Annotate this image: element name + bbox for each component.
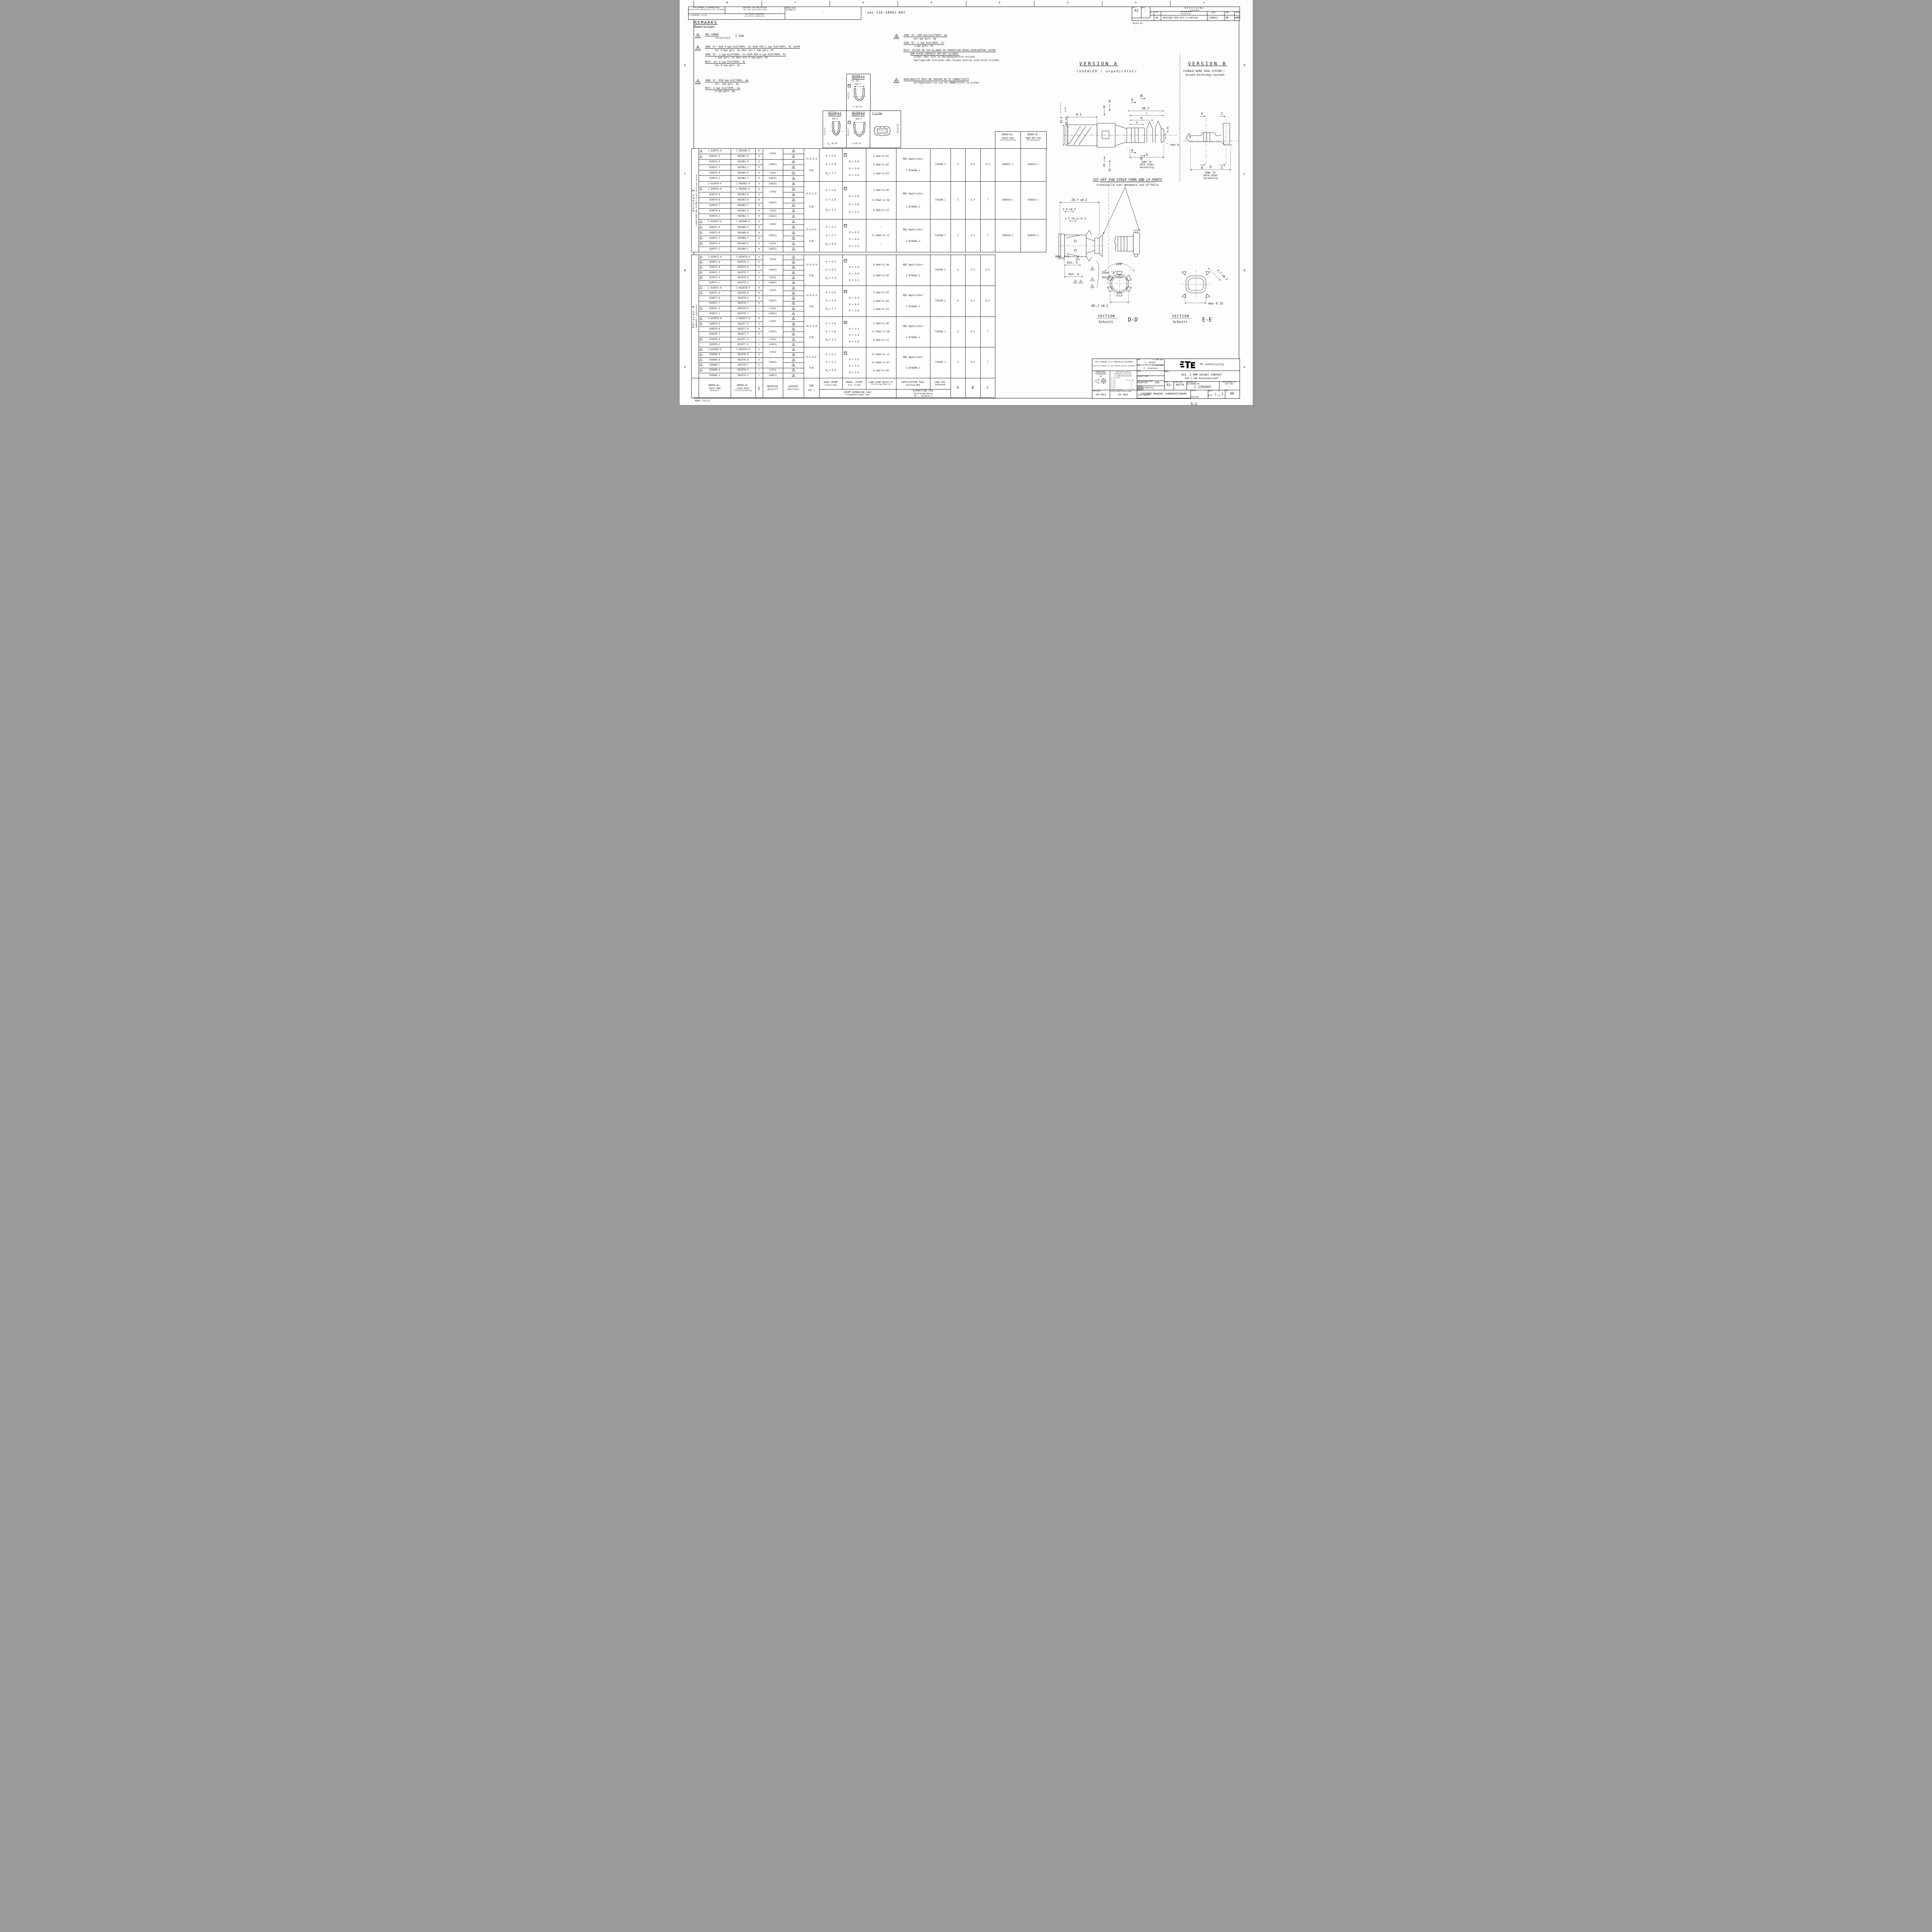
table-cell: M xyxy=(755,296,763,301)
table-cell: N xyxy=(755,236,763,241)
svg-text:CUT-OFF FOR STRIP FORM AND LP-: CUT-OFF FOR STRIP FORM AND LP-PARTS xyxy=(1093,178,1162,182)
grid-col-label: 6 xyxy=(862,1,864,4)
loc-value: A1 xyxy=(1132,9,1141,13)
table-cell: >1.0-2.5FLR xyxy=(804,286,819,316)
table-cell: M xyxy=(755,176,763,181)
note-triangle-icon: 5 xyxy=(894,78,899,83)
project-label: PROJECT NR.: xyxy=(1133,22,1144,24)
drawing-sheet: 87654321 DDCCBBAA THIS DRAWING IS UNPUBL… xyxy=(680,0,1253,405)
table-cell: CuFe2 xyxy=(763,276,783,281)
table-cell: CuNiSi xyxy=(763,214,783,219)
table-cell: K xyxy=(755,265,763,270)
svg-text:2: 2 xyxy=(793,199,794,201)
brand-name: TE Connectivity xyxy=(1200,363,1224,366)
table-cell: E = 3.6G = 3.8DDr= 1.7 xyxy=(819,286,842,316)
svg-text:3: 3 xyxy=(793,293,794,294)
table-cell: 1-929974-4 xyxy=(699,181,731,187)
svg-text:A: A xyxy=(1201,112,1203,116)
svg-text:3: 3 xyxy=(793,333,794,335)
table-cell: MQC-Applicator2-878486-2 xyxy=(896,149,930,182)
checked-by: J. Granzow xyxy=(1137,367,1164,370)
svg-text:5: 5 xyxy=(700,150,701,152)
svg-text:1: 1 xyxy=(793,313,794,315)
cage-code: 00779 xyxy=(1173,383,1187,386)
remark-note-5: 5AVAILABILITY MUST BE CHECKED BY TE CONN… xyxy=(894,78,1056,86)
table-cell: 962982-4 xyxy=(731,170,755,176)
released-mark: -,- xyxy=(779,8,782,10)
table-cell: 3 xyxy=(783,291,804,296)
version-label: Version A(UNSEALED / ungedichtet) xyxy=(691,255,699,378)
te-logo xyxy=(1180,361,1195,369)
table-cell: 5929972-8 xyxy=(699,265,731,270)
table-cell: 929974-4 xyxy=(699,209,731,214)
svg-text:4.7 ±0.2: 4.7 ±0.2 xyxy=(1216,269,1228,281)
table-cell: 929973-1 xyxy=(699,247,731,252)
table-cell: 5929975-9 xyxy=(699,154,731,160)
svg-text:1: 1 xyxy=(793,277,794,279)
grid-row-label: C xyxy=(684,172,686,175)
svg-text:2: 2 xyxy=(697,47,699,50)
note-triangle-icon: 4 xyxy=(894,34,899,39)
table-cell: 2.5mm²=1.972.0mm²=1.821.5mm²=1.67 xyxy=(866,286,896,316)
table-cell: 1 xyxy=(783,281,804,286)
svg-text:beidseitig: beidseitig xyxy=(1139,166,1154,169)
doc-type: CUSTOMER DRAWING /KUNDENZEICHNUNG xyxy=(1137,393,1190,395)
table-cell: 5.5 xyxy=(965,286,980,316)
section-cc-shape xyxy=(851,86,867,105)
table-cell: 962981-1 xyxy=(731,214,755,219)
table-cell: 4.0mm²=2.303.0mm²=2.05 xyxy=(866,255,896,286)
table-cell: 962977-9 xyxy=(731,321,755,327)
svg-text:3: 3 xyxy=(793,303,794,305)
version-a-subtitle: (USEALED / ungedichtet) xyxy=(1077,70,1138,73)
table-cell: 929975-4 xyxy=(699,170,731,176)
svg-text:5: 5 xyxy=(700,262,701,264)
order-seal-header: ORDER-Nr. SINGLE SEAL Einzeldichtung xyxy=(995,131,1021,149)
table-cell: 3 xyxy=(783,321,804,327)
svg-text:1: 1 xyxy=(793,282,794,284)
grid-row-label: B xyxy=(684,269,686,272)
note-triangle-icon: 1 xyxy=(792,368,795,371)
svg-text:3: 3 xyxy=(793,167,794,169)
note-triangle-icon: 3 xyxy=(792,155,795,158)
table-cell: 8.5 xyxy=(980,286,995,316)
table-cell: M xyxy=(755,316,763,321)
table-cell: 4 xyxy=(951,286,965,316)
table-cell: 828921-1 xyxy=(995,149,1020,182)
table-cell: M xyxy=(755,209,763,214)
table-cell: 1 xyxy=(783,209,804,214)
table-cell: M xyxy=(755,214,763,219)
grid-col-label: 1 xyxy=(1203,1,1204,4)
table-cell: 1 xyxy=(783,373,804,378)
parts-table: Version A(UNSEALED / ungedichtet)51-9299… xyxy=(691,255,995,378)
table-cell: 4 xyxy=(951,255,965,286)
table-cell: J xyxy=(755,368,763,373)
note-triangle-icon: 5 xyxy=(699,358,702,361)
table-cell: 2 xyxy=(783,197,804,203)
table-cell: 3 xyxy=(951,219,965,252)
table-cell: 3 xyxy=(783,203,804,208)
svg-text:D: D xyxy=(1109,168,1111,172)
note-triangle-icon: 5 xyxy=(699,255,702,258)
svg-text:Ø3.8: Ø3.8 xyxy=(1060,117,1063,123)
svg-text:5: 5 xyxy=(700,243,701,245)
table-cell: MQC-Applicator2-878484-2 xyxy=(896,219,930,252)
table-cell: 2 xyxy=(783,296,804,301)
svg-text:Schnitt: Schnitt xyxy=(1173,320,1187,324)
svg-text:ZONE "B": ZONE "B" xyxy=(1141,161,1152,163)
svg-text:A: A xyxy=(1201,166,1203,170)
note-triangle-icon: 2 xyxy=(792,149,795,152)
svg-text:4: 4 xyxy=(793,183,794,185)
table-cell: M xyxy=(755,291,763,296)
svg-text:5: 5 xyxy=(700,293,701,294)
table-cell: 3 xyxy=(951,316,965,347)
was-note: was 116-18001-002 xyxy=(867,11,906,15)
note-triangle-icon: 5 xyxy=(699,220,702,223)
table-cell: CuNiSi xyxy=(763,247,783,252)
sheet-footnote: 4805 (3/11) xyxy=(695,400,711,402)
section-cc-box: SECTION C-C Schnitt C-C B (für EDS) H±0.… xyxy=(846,74,871,111)
table-cell: CuFe2 xyxy=(763,209,783,214)
note-triangle-icon: 2 xyxy=(792,348,795,351)
table-cell: CuFe2 xyxy=(763,316,783,327)
note-triangle-icon: 3 xyxy=(792,353,795,356)
table-cell: J xyxy=(755,373,763,378)
svg-text:1: 1 xyxy=(793,210,794,212)
table-cell: CuNiSi xyxy=(763,197,783,208)
note-triangle-icon: 5 xyxy=(699,226,702,228)
table-cell: 962979-1 xyxy=(731,281,755,286)
table-cell: 734289-1 xyxy=(930,219,951,252)
table-cell: 734285-1 xyxy=(930,347,951,378)
table-cell: 5929969-4 xyxy=(699,368,731,373)
table-cell: CuNiSi xyxy=(763,281,783,286)
table-cell: 7 xyxy=(980,316,995,347)
part-name-en: DIA. 2.5MM SOCKET CONTACT xyxy=(1164,373,1240,376)
section-bb-shape xyxy=(851,122,867,140)
fcrimp-box: F-Crimp CH±0.03 xyxy=(870,111,901,148)
svg-text:2: 2 xyxy=(793,150,794,152)
table-cell: 3 xyxy=(783,165,804,170)
note-triangle-icon: 2 xyxy=(792,317,795,320)
table-cell: 828920-1 xyxy=(995,219,1020,252)
view-separator xyxy=(1180,54,1180,182)
table-cell: 0.5-1.0FLR xyxy=(804,181,819,219)
grid-col-label: 5 xyxy=(930,1,932,4)
table-cell: N xyxy=(755,230,763,236)
svg-text:3: 3 xyxy=(793,156,794,158)
table-cell: 2 xyxy=(783,265,804,270)
table-cell: 962976-8 xyxy=(731,357,755,362)
table-cell: 5929973-9 xyxy=(699,225,731,230)
section-mark-a: A xyxy=(848,121,851,124)
svg-text:3: 3 xyxy=(793,354,794,356)
table-cell: 51-929973-0 xyxy=(699,219,731,225)
svg-text:3.6 +0.3: 3.6 +0.3 xyxy=(1063,208,1076,211)
table-cell: 828920-1 xyxy=(995,181,1020,219)
parts-table-version-a: Version A(UNSEALED / ungedichtet)51-9299… xyxy=(691,255,995,378)
svg-text:Trennstelle fuer Bandware und: Trennstelle fuer Bandware und LP-Teile xyxy=(1096,184,1158,187)
drawn-by: C. Goetz xyxy=(1137,361,1164,364)
grid-col-label: 3 xyxy=(1067,1,1068,4)
svg-text:10.2: 10.2 xyxy=(1141,107,1149,110)
svg-text:B: B xyxy=(1140,94,1142,98)
note-triangle-icon: 2 xyxy=(792,286,795,289)
svg-text:C: C xyxy=(1221,112,1223,116)
table-cell: 929974-1 xyxy=(699,214,731,219)
table-cell: 0.2-0.4FLR xyxy=(804,219,819,252)
svg-text:5: 5 xyxy=(700,267,701,269)
table-cell: CuNiSi xyxy=(763,311,783,316)
svg-text:3: 3 xyxy=(1080,281,1081,284)
table-cell: 4 xyxy=(951,149,965,182)
revisions-title: REVISIONS xyxy=(1150,7,1240,10)
table-cell: 5929972-9 xyxy=(699,260,731,265)
table-cell: CuFe2 xyxy=(763,170,783,176)
table-cell: CuFe2 xyxy=(763,219,783,230)
table-cell: MQC-Applicator2-878483-2 xyxy=(896,255,930,286)
note-triangle-icon: 5 xyxy=(699,369,702,371)
svg-text:BOTH SIDES: BOTH SIDES xyxy=(1139,163,1154,166)
svg-text:C: C xyxy=(1221,166,1223,170)
svg-text:5: 5 xyxy=(700,354,701,356)
table-cell: 962977-4 xyxy=(731,337,755,342)
table-cell: 962978-1 xyxy=(731,311,755,316)
svg-text:2: 2 xyxy=(793,221,794,223)
table-cell: CuNiSi xyxy=(763,176,783,181)
table-cell: CuNiSi xyxy=(763,373,783,378)
table-cell: 3 xyxy=(783,270,804,275)
svg-text:E: E xyxy=(1103,164,1105,168)
svg-text:1: 1 xyxy=(793,344,794,346)
table-cell: 4 xyxy=(783,181,804,187)
table-cell: 962982-9 xyxy=(731,154,755,160)
table-cell: 734285-2 xyxy=(930,286,951,316)
parts-table-footer: ORDER-Nr.STRIP FORMBandware ORDER-Nr.LOO… xyxy=(691,378,995,398)
note-triangle-icon: 2 xyxy=(792,220,795,223)
table-cell: K xyxy=(755,357,763,362)
note-triangle-icon: 5 xyxy=(699,363,702,366)
svg-text:+0.06/−0.1: +0.06/−0.1 xyxy=(1060,103,1062,113)
svg-text:3: 3 xyxy=(697,81,699,84)
svg-text:E-E: E-E xyxy=(1202,317,1212,323)
table-cell: MQC-Applicator2-878480-2 xyxy=(896,347,930,378)
table-cell: 962982-1 xyxy=(731,176,755,181)
svg-text:1: 1 xyxy=(697,35,699,38)
note-triangle-icon: 1 xyxy=(792,276,795,279)
table-cell: 2 xyxy=(783,286,804,291)
table-cell: 7 xyxy=(980,219,995,252)
table-cell: BH = 4.5K = 4.5D = 3.2 xyxy=(842,219,866,252)
svg-text:5: 5 xyxy=(700,221,701,223)
svg-text:5: 5 xyxy=(700,287,701,289)
svg-text:1.7 +0.1/−0.3: 1.7 +0.1/−0.3 xyxy=(1065,217,1086,220)
table-cell: 962979-8 xyxy=(731,265,755,270)
table-cell: L xyxy=(755,342,763,347)
note-triangle-icon: 1 xyxy=(792,242,795,245)
table-cell: 1 xyxy=(783,214,804,219)
drawing-number: C-1355065 xyxy=(1187,385,1219,389)
table-cell: 51-929970-0 xyxy=(699,316,731,321)
table-cell: M xyxy=(755,301,763,306)
sheet-size: A1 xyxy=(1164,383,1173,388)
table-cell: 962979-7 xyxy=(731,270,755,275)
svg-text:BOTH SIDES: BOTH SIDES xyxy=(1203,174,1218,177)
table-cell: 1.0mm²=1.450.75mm²=1.360.5mm²=1.27 xyxy=(866,181,896,219)
svg-text:9: 9 xyxy=(1209,165,1211,169)
note-triangle-icon: 1 xyxy=(792,307,795,310)
table-cell: 962981-4 xyxy=(731,209,755,214)
remarks-heading: REMARKS Bemerkungen xyxy=(694,20,718,29)
table-cell: 929971-7 xyxy=(699,301,731,306)
table-cell: 1-962977-0 xyxy=(731,316,755,321)
table-cell: 929974-9 xyxy=(699,192,731,197)
grid-col-label: 4 xyxy=(999,1,1000,4)
table-cell: J xyxy=(755,276,763,281)
table-cell: 1 xyxy=(783,247,804,252)
svg-text:max 0.5: max 0.5 xyxy=(1171,143,1180,146)
revisions-block: LOC A1 DIST — PROJECT NR.: — REVISIONS A… xyxy=(1132,7,1240,21)
part-name-de: DIA 2.5mm Buchsenkontakt xyxy=(1164,377,1240,380)
svg-text:3: 3 xyxy=(793,238,794,240)
svg-text:3: 3 xyxy=(793,205,794,207)
note-triangle-icon: 5 xyxy=(699,261,702,264)
table-cell: 929974-8 xyxy=(699,197,731,203)
note-triangle-icon: 5 xyxy=(699,353,702,356)
svg-text:3: 3 xyxy=(793,227,794,229)
table-cell: CuFe2 xyxy=(763,286,783,296)
note-triangle-icon: 3 xyxy=(792,165,795,168)
svg-text:5: 5 xyxy=(700,257,701,259)
table-cell: 929974-7 xyxy=(699,203,731,208)
note-triangle-icon: 5 xyxy=(699,236,702,239)
table-cell: 8.5 xyxy=(980,149,995,182)
table-cell: AH = 4.3K = 4.5D = 2.6 xyxy=(842,286,866,316)
finish-value: SEE TABLE xyxy=(1110,394,1137,396)
note-triangle-icon: 5 xyxy=(699,231,702,234)
table-cell: E = 2.1G = 2.1DDr= 0.8 xyxy=(819,219,842,252)
svg-text:2: 2 xyxy=(793,349,794,351)
table-cell: N xyxy=(755,154,763,160)
table-cell: 5.5 xyxy=(965,255,980,286)
table-cell: CuNiSi xyxy=(763,327,783,337)
table-cell: E = 2.6G = 2.8DDr= 1.1 xyxy=(819,316,842,347)
table-cell: 2 xyxy=(783,347,804,352)
table-cell: 962979-9 xyxy=(731,260,755,265)
note-triangle-icon: 1 xyxy=(792,214,795,218)
table-cell: 1 xyxy=(783,337,804,342)
table-cell: 962978-7 xyxy=(731,301,755,306)
table-cell: 7 xyxy=(980,347,995,378)
note-triangle-icon: 1 xyxy=(792,312,795,315)
svg-text:5: 5 xyxy=(895,80,897,83)
table-cell: 962980-7 xyxy=(731,236,755,241)
table-cell: 3 xyxy=(783,154,804,160)
table-cell: 4.5 xyxy=(965,347,980,378)
table-cell: 5929969-9 xyxy=(699,352,731,357)
table-cell: K xyxy=(755,260,763,265)
table-cell: AH = 3.2K = 3.4D = 1.8 xyxy=(842,316,866,347)
table-cell: 3 xyxy=(951,347,965,378)
table-cell: 4.5 xyxy=(965,316,980,347)
table-cell: 3 xyxy=(951,181,965,219)
table-cell: 2.5mm²=1.972.0mm²=1.821.5mm²=1.67 xyxy=(866,149,896,182)
svg-text:D-D: D-D xyxy=(1128,317,1138,323)
svg-text:5: 5 xyxy=(700,359,701,361)
revision-value: A6 xyxy=(1225,392,1240,396)
svg-text:min. 5: min. 5 xyxy=(1067,261,1077,264)
mated-with-value: — xyxy=(785,11,861,14)
note-triangle-icon: 5 xyxy=(699,187,702,190)
table-cell: L xyxy=(755,311,763,316)
table-cell: 3 xyxy=(783,352,804,357)
svg-text:5: 5 xyxy=(700,369,701,371)
table-cell: MQC-Applicator2-878485-2 xyxy=(896,181,930,219)
note-triangle-icon: 3 xyxy=(792,301,795,304)
table-cell: 734285-1 xyxy=(930,316,951,347)
table-cell: 3 xyxy=(783,301,804,306)
svg-text:1: 1 xyxy=(793,178,794,180)
grid-row-label: A xyxy=(684,366,686,369)
table-cell: CuFe2 xyxy=(763,337,783,342)
svg-text:3: 3 xyxy=(793,323,794,325)
table-cell: 0.35mm²=1.110.25mm²=1.070.2mm²=1.05 xyxy=(866,347,896,378)
table-cell: 734289-2 xyxy=(930,149,951,182)
table-cell: 2 xyxy=(783,327,804,332)
svg-text:2: 2 xyxy=(793,257,794,259)
note-triangle-icon: 5 xyxy=(699,286,702,289)
table-cell: CuFe2 xyxy=(763,241,783,247)
table-cell: —0.35mm²=1.11— xyxy=(866,219,896,252)
table-cell: 1 xyxy=(783,176,804,181)
table-cell: 3 xyxy=(783,225,804,230)
table-cell: 3 xyxy=(783,236,804,241)
remark-note-1: 1PRE TINNEDvorverzinnt1-2μm xyxy=(695,33,776,41)
svg-text:1: 1 xyxy=(793,172,794,174)
svg-text:5: 5 xyxy=(700,189,701,190)
table-cell: 962977-1 xyxy=(731,342,755,347)
note-triangle-icon: 5 xyxy=(699,338,702,340)
tolerance-rows: 0 PLC± 0.15 mm1 PLC± -2 PLC± -3 PLC± -4 … xyxy=(1111,379,1137,391)
fcrimp-shape xyxy=(873,122,891,138)
table-cell: N xyxy=(755,203,763,208)
table-cell: 1-962978-0 xyxy=(731,286,755,291)
corner-block: THIS DRAWING IS UNPUBLISHED. VERTRAULICH… xyxy=(688,7,786,20)
remark-note-2: 2ZONE "A": MIN 0.8μm ELECTROPL. Au OVER … xyxy=(695,46,888,68)
table-cell: >2.5-4.0FLR xyxy=(804,255,819,286)
note-triangle-icon: 2 xyxy=(792,296,795,299)
table-cell: L xyxy=(755,337,763,342)
grid-row-label: D xyxy=(684,64,686,67)
version-label: Version B(SINGLE WIRE SEAL-SYSTEM / Einz… xyxy=(691,149,699,252)
table-cell: MQC-Applicator2-878482-2 xyxy=(896,286,930,316)
table-cell: 962981-8 xyxy=(731,197,755,203)
svg-text:1: 1 xyxy=(793,375,794,377)
controlled-doc-note: THIS DRAWING IS A CONTROLLED DOCUMENT. xyxy=(1092,361,1137,363)
table-cell: CuFe2 xyxy=(763,368,783,373)
table-cell: A xyxy=(755,181,763,187)
table-cell: 8.5 xyxy=(980,255,995,286)
copyright-note: © COPYRIGHT _01 By - xyxy=(689,15,709,17)
grid-col-label: 8 xyxy=(726,1,728,4)
table-cell: 2 xyxy=(783,255,804,260)
note-triangle-icon: 3 xyxy=(792,271,795,274)
svg-text:max 4.15: max 4.15 xyxy=(1208,302,1223,305)
svg-text:8.1: 8.1 xyxy=(1076,113,1082,116)
table-cell: 5929973-8 xyxy=(699,230,731,236)
